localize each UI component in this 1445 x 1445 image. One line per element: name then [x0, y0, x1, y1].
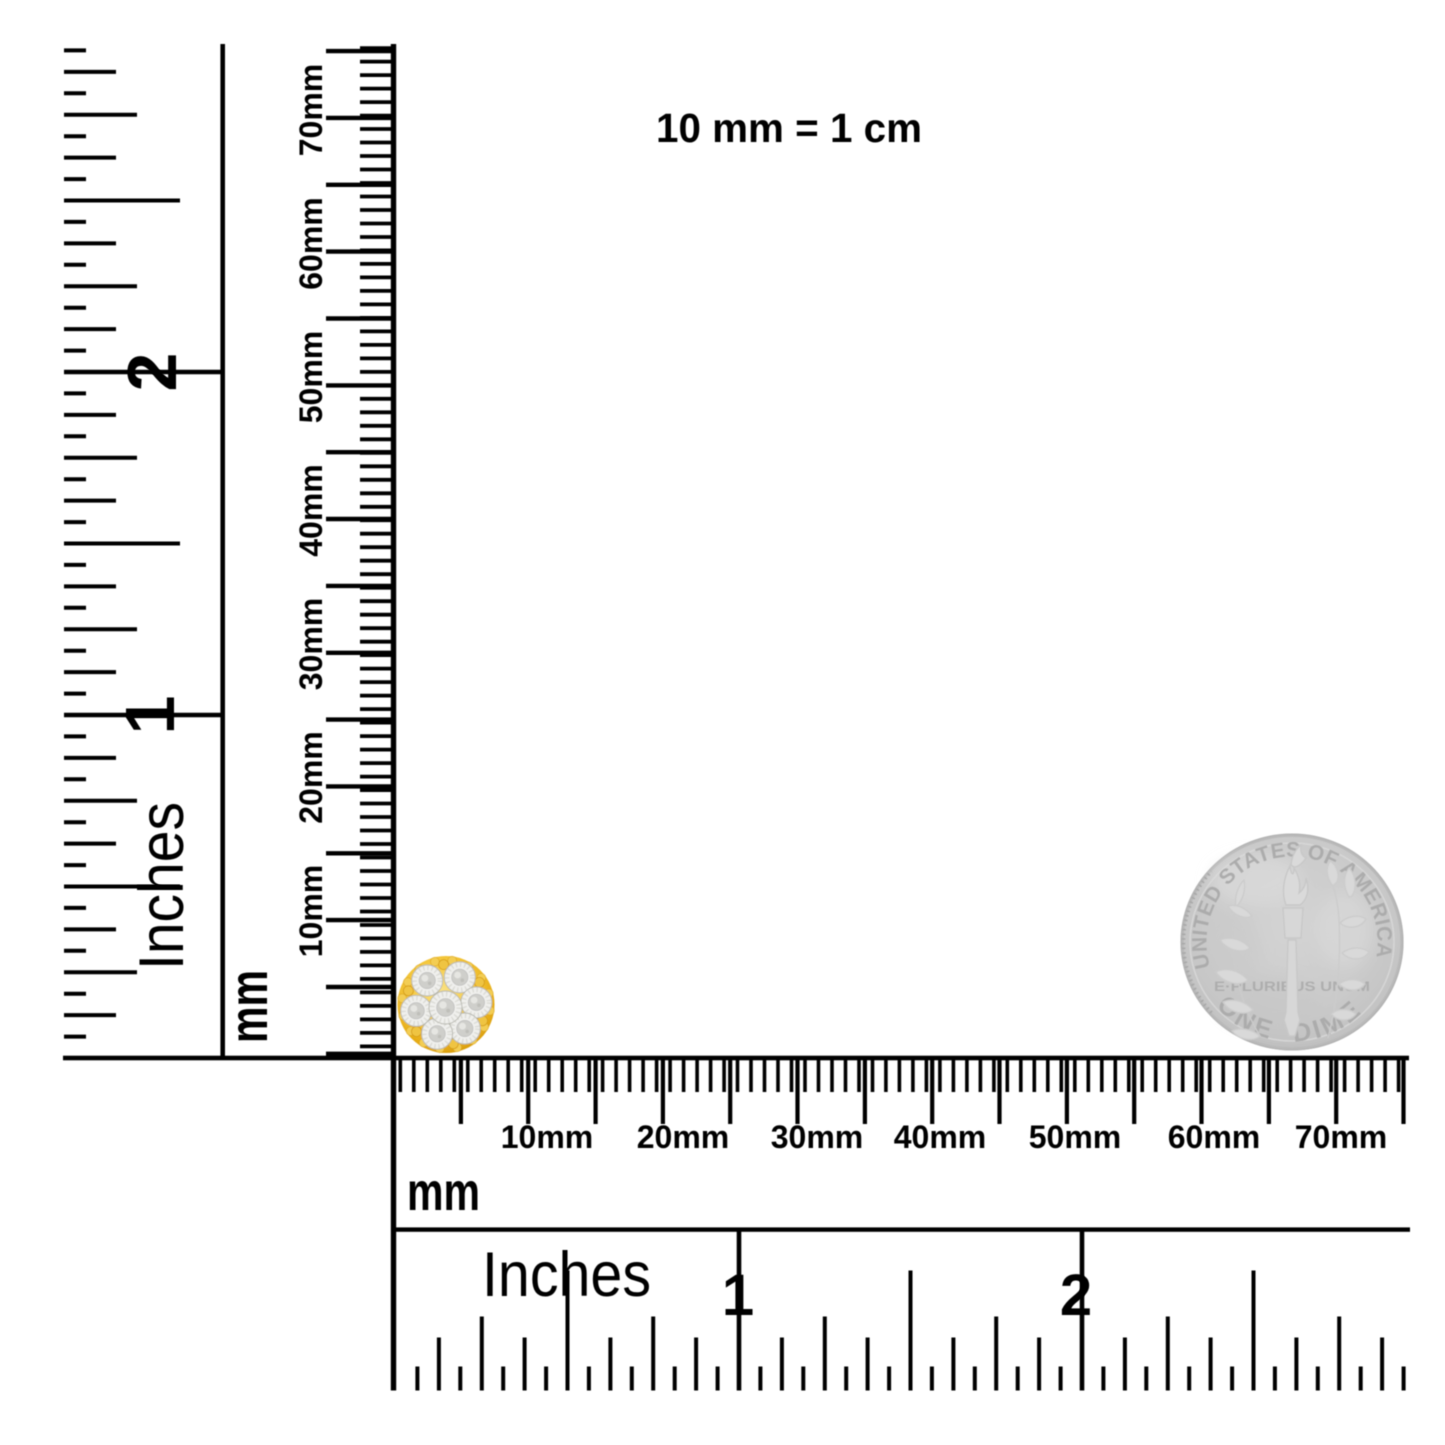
svg-text:1: 1: [722, 1263, 754, 1328]
svg-text:60mm: 60mm: [293, 197, 329, 290]
svg-text:Inches: Inches: [482, 1240, 651, 1310]
svg-text:mm: mm: [219, 970, 279, 1043]
svg-text:30mm: 30mm: [293, 598, 329, 691]
svg-text:40mm: 40mm: [293, 464, 329, 557]
svg-text:30mm: 30mm: [771, 1119, 864, 1155]
svg-text:40mm: 40mm: [894, 1119, 987, 1155]
svg-text:60mm: 60mm: [1168, 1119, 1261, 1155]
svg-text:2: 2: [1060, 1263, 1092, 1328]
svg-text:20mm: 20mm: [293, 731, 329, 824]
svg-text:Inches: Inches: [127, 802, 197, 970]
svg-text:70mm: 70mm: [1295, 1119, 1388, 1155]
svg-text:mm: mm: [407, 1162, 480, 1222]
svg-text:50mm: 50mm: [1029, 1119, 1122, 1155]
svg-text:1: 1: [111, 696, 189, 735]
svg-text:2: 2: [113, 353, 191, 392]
svg-text:10mm: 10mm: [293, 865, 329, 958]
svg-text:20mm: 20mm: [637, 1119, 730, 1155]
svg-text:70mm: 70mm: [293, 64, 329, 157]
svg-text:10mm: 10mm: [501, 1119, 594, 1155]
svg-text:50mm: 50mm: [293, 331, 329, 424]
svg-text:10 mm = 1 cm: 10 mm = 1 cm: [656, 105, 922, 151]
